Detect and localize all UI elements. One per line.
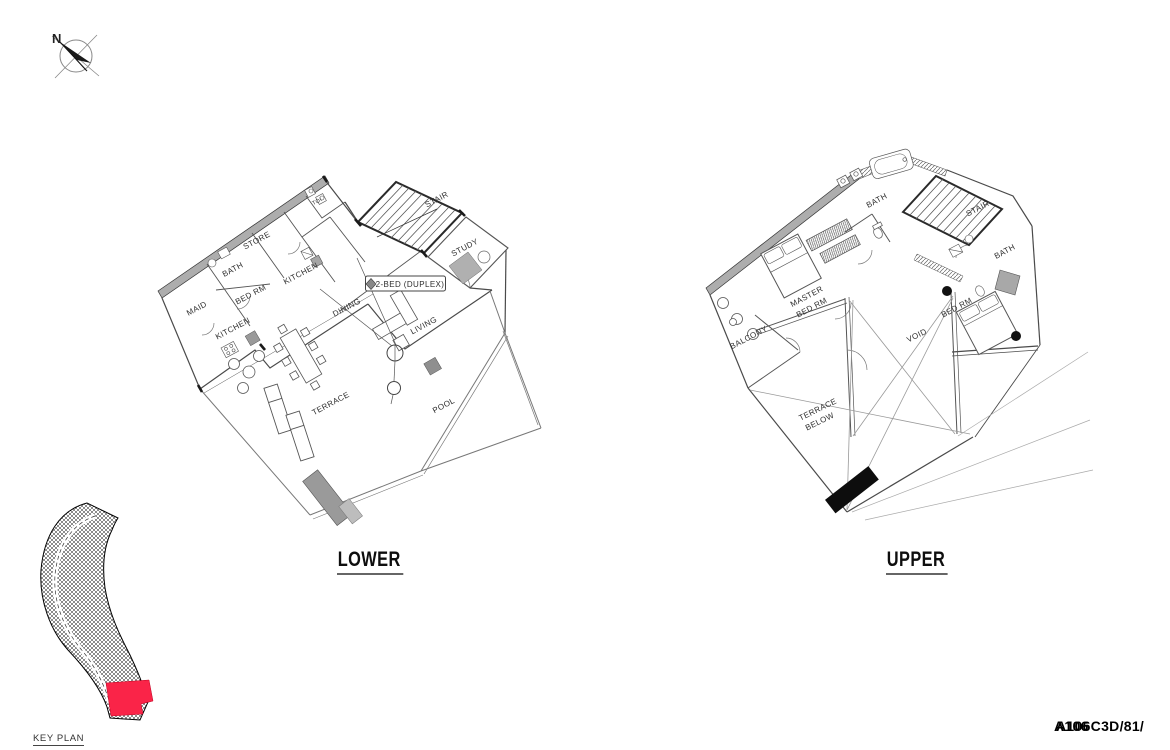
room-label-maid: MAID	[185, 300, 208, 318]
upper-plan-drawing: BATH STAIR BATH MASTER BED RM BED RM BAL…	[706, 148, 1093, 520]
upper-plan-title: UPPER	[886, 548, 948, 575]
upper-stair	[903, 176, 1002, 282]
room-label-bath-top: BATH	[865, 191, 889, 209]
north-letter: N	[52, 31, 61, 46]
key-plan-highlight	[106, 680, 153, 716]
unit-tag-text: 2-BED (DUPLEX)	[376, 280, 445, 289]
room-label-kitchen-upper: KITCHEN	[282, 261, 320, 287]
wardrobe	[806, 219, 860, 266]
room-label-pool: POOL	[431, 396, 456, 415]
room-label-bath-right: BATH	[993, 242, 1017, 260]
room-label-void: VOID	[905, 327, 928, 344]
plan-canvas: N	[0, 0, 1170, 750]
north-arrow: N	[52, 31, 99, 78]
room-label-bath: BATH	[221, 260, 245, 278]
terrace-table-set	[229, 351, 265, 394]
black-corner-element	[825, 466, 879, 513]
lower-plan-drawing: 2-BED (DUPLEX) MAID BATH BED RM STORE KI…	[158, 176, 541, 532]
lower-terrace-pool-edges	[200, 291, 541, 519]
stove	[221, 341, 239, 357]
lower-plan-title: LOWER	[337, 548, 403, 575]
terrace-loungers	[264, 384, 314, 461]
room-label-terrace: TERRACE	[311, 390, 351, 417]
key-plan	[41, 503, 153, 720]
unit-tag: 2-BED (DUPLEX)	[366, 276, 446, 291]
drawing-sheet: N	[0, 0, 1170, 750]
sheet-ref-overlay: A106	[1054, 718, 1089, 734]
lower-planter	[303, 465, 363, 531]
room-label-dining: DINING	[331, 296, 362, 318]
lower-fixtures	[208, 187, 326, 268]
key-plan-label: KEY PLAN	[33, 733, 84, 746]
room-label-balcony: BALCONY	[729, 324, 770, 351]
